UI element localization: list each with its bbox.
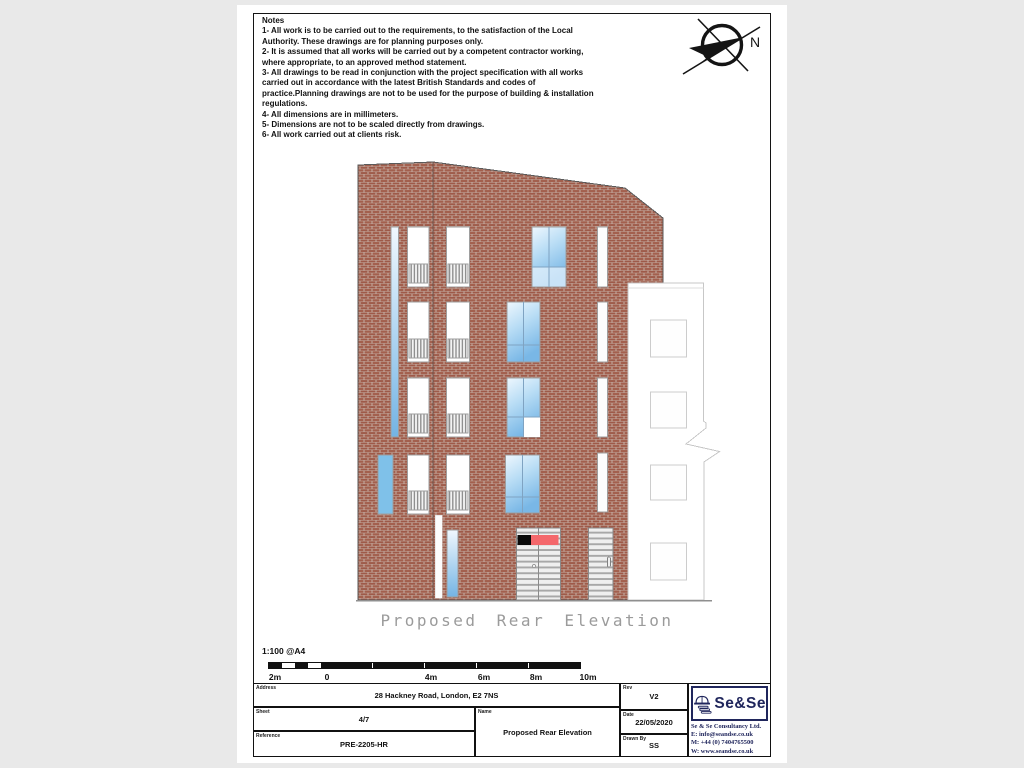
titleblock-date-cell: Date 22/05/2020 xyxy=(620,710,688,734)
scale-label: 1:100 @A4 xyxy=(262,646,305,656)
name-label: Name xyxy=(478,709,492,715)
note-item: 3- All drawings to be read in conjunctio… xyxy=(262,68,600,110)
door-handle xyxy=(608,557,611,567)
reference-value: PRE-2205-HR xyxy=(340,740,388,749)
elevation-drawing xyxy=(345,150,725,610)
note-item: 6- All work carried out at clients risk. xyxy=(262,130,600,140)
company-email: E: info@seandse.co.uk xyxy=(691,731,770,739)
scale-tick: 8m xyxy=(530,672,542,682)
drawn-by-label: Drawn By xyxy=(623,736,646,742)
scale-tick-labels: 2m 0 4m 6m 8m 10m xyxy=(268,672,581,682)
date-value: 22/05/2020 xyxy=(635,718,673,727)
window-blue-left xyxy=(378,455,393,514)
scale-tick: 4m xyxy=(425,672,437,682)
glazed-window-floor-1 xyxy=(506,455,540,513)
note-item: 5- Dimensions are not to be scaled direc… xyxy=(262,120,600,130)
titleblock-address-cell: Address 28 Hackney Road, London, E2 7NS xyxy=(253,683,620,707)
sheet-value: 4/7 xyxy=(359,715,369,724)
note-item: 2- It is assumed that all works will be … xyxy=(262,47,600,68)
rev-value: V2 xyxy=(649,692,658,701)
titleblock-logo-cell: Se&Se Se & Se Consultancy Ltd. E: info@s… xyxy=(688,683,771,757)
window-slit-ground xyxy=(447,530,458,597)
company-name: Se & Se Consultancy Ltd. xyxy=(691,723,770,731)
titleblock-drawnby-cell: Drawn By SS xyxy=(620,734,688,757)
titleblock-name-cell: Name Proposed Rear Elevation xyxy=(475,707,620,757)
drawn-by-value: SS xyxy=(649,741,659,750)
company-mobile: M: +44 (0) 7404765500 xyxy=(691,739,770,747)
scale-tick: 2m xyxy=(269,672,281,682)
address-value: 28 Hackney Road, London, E2 7NS xyxy=(375,691,499,700)
company-logo: Se&Se xyxy=(691,686,768,721)
company-contact-block: Se & Se Consultancy Ltd. E: info@seandse… xyxy=(689,722,770,756)
sheet-label: Sheet xyxy=(256,709,270,715)
door-handle xyxy=(532,564,535,567)
drawing-caption: Proposed Rear Elevation xyxy=(377,611,677,630)
north-compass-icon: N xyxy=(680,10,775,88)
glazed-window-floor-4 xyxy=(532,227,566,287)
glazed-window-floor-3 xyxy=(507,302,540,362)
notes-title: Notes xyxy=(262,16,600,26)
reference-label: Reference xyxy=(256,733,280,739)
rev-label: Rev xyxy=(623,685,632,691)
titleblock-rev-cell: Rev V2 xyxy=(620,683,688,710)
scale-tick: 6m xyxy=(478,672,490,682)
logo-text: Se&Se xyxy=(714,695,766,713)
window-slit-tall-left xyxy=(391,227,399,437)
scale-tick: 10m xyxy=(579,672,596,682)
drawing-sheet: Notes 1- All work is to be carried out t… xyxy=(237,5,787,763)
door-sign-red xyxy=(531,535,559,545)
glazed-window-floor-2 xyxy=(507,378,540,437)
scale-tick: 0 xyxy=(325,672,330,682)
address-label: Address xyxy=(256,685,276,691)
date-label: Date xyxy=(623,712,634,718)
door-sign-black xyxy=(518,535,532,545)
company-web: W: www.seandse.co.uk xyxy=(691,748,770,756)
notes-block: Notes 1- All work is to be carried out t… xyxy=(262,16,600,141)
titleblock-reference-cell: Reference PRE-2205-HR xyxy=(253,731,475,757)
compass-north-label: N xyxy=(750,34,760,50)
adjacent-building xyxy=(628,283,720,600)
garage-door-single xyxy=(589,528,614,600)
titleblock-sheet-cell: Sheet 4/7 xyxy=(253,707,475,731)
hard-hat-icon xyxy=(693,690,713,718)
garage-door-double xyxy=(517,528,561,600)
note-item: 1- All work is to be carried out to the … xyxy=(262,26,600,47)
note-item: 4- All dimensions are in millimeters. xyxy=(262,110,600,120)
scale-bar xyxy=(268,662,581,669)
wall-pillar-strip xyxy=(435,515,442,598)
name-value: Proposed Rear Elevation xyxy=(503,728,592,737)
